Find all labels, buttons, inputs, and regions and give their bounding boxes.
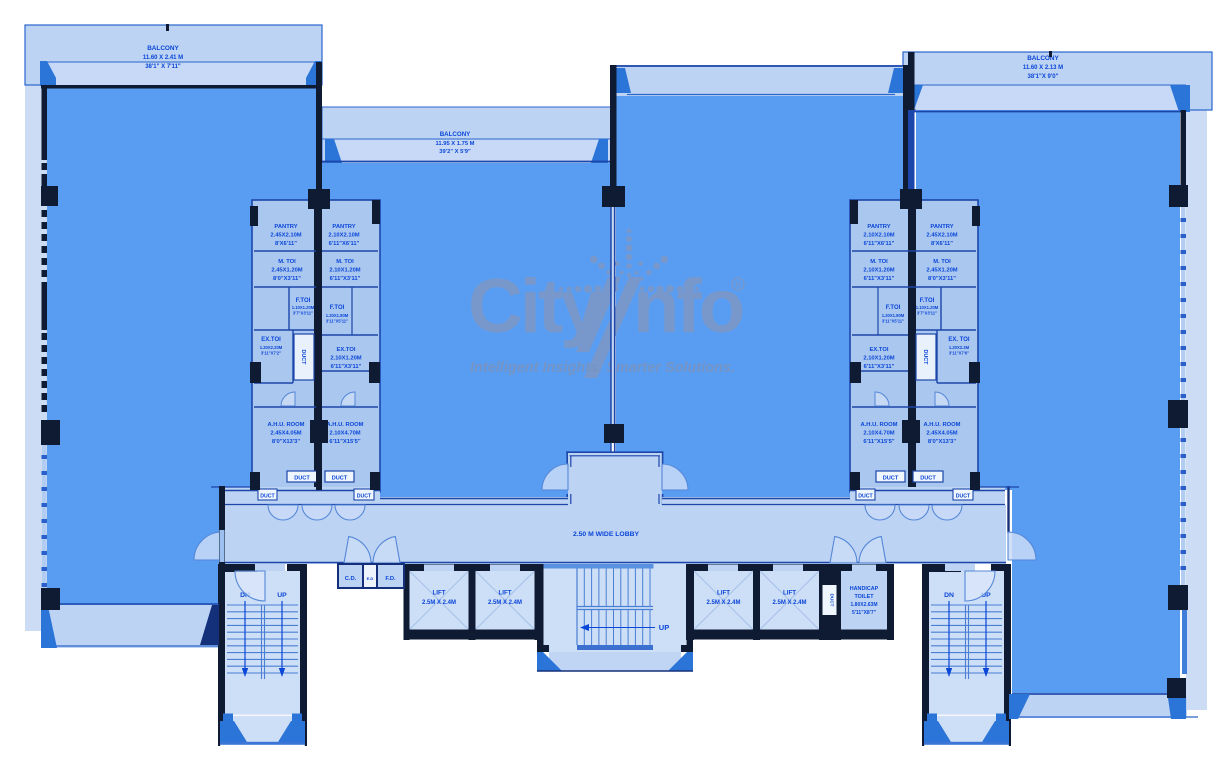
svg-text:DUCT: DUCT: [922, 350, 928, 366]
svg-text:2.10X1.20M: 2.10X1.20M: [329, 268, 360, 274]
svg-text:DUCT: DUCT: [294, 476, 310, 482]
svg-text:1.20X2.20M: 1.20X2.20M: [260, 345, 283, 350]
svg-text:6'11"X3'11": 6'11"X3'11": [864, 276, 895, 282]
svg-text:A.H.U. ROOM: A.H.U. ROOM: [326, 422, 363, 428]
svg-text:6'11"X3'11": 6'11"X3'11": [331, 364, 362, 370]
svg-text:1.20X1.80M: 1.20X1.80M: [882, 313, 905, 318]
svg-text:DUCT: DUCT: [300, 350, 306, 366]
svg-text:PANTRY: PANTRY: [930, 224, 953, 230]
svg-text:nfo: nfo: [633, 264, 743, 349]
svg-text:1.10X1.20M: 1.10X1.20M: [292, 305, 315, 310]
svg-text:3'7"X3'11": 3'7"X3'11": [293, 311, 313, 316]
svg-text:3'11"X5'11": 3'11"X5'11": [882, 319, 904, 324]
svg-text:BALCONY: BALCONY: [147, 45, 179, 52]
svg-text:5'11"X8'7": 5'11"X8'7": [852, 610, 877, 616]
svg-text:38'1"X 9'0": 38'1"X 9'0": [1028, 74, 1059, 80]
svg-text:Intelligent Insights. Smarter: Intelligent Insights. Smarter Solutions.: [470, 360, 735, 376]
svg-text:DUCT: DUCT: [956, 494, 971, 500]
svg-text:City: City: [468, 264, 602, 349]
svg-text:2.5M X 2.4M: 2.5M X 2.4M: [422, 600, 456, 606]
svg-text:E.D: E.D: [367, 576, 374, 581]
svg-text:F.TOI: F.TOI: [886, 305, 901, 311]
svg-text:DUCT: DUCT: [332, 476, 348, 482]
svg-text:PANTRY: PANTRY: [274, 224, 297, 230]
svg-text:2.10X4.70M: 2.10X4.70M: [329, 431, 360, 437]
svg-text:EX. TOI: EX. TOI: [948, 337, 970, 343]
svg-text:3'7"X3'11": 3'7"X3'11": [917, 311, 937, 316]
svg-text:3'11"X7'6": 3'11"X7'6": [949, 351, 969, 356]
svg-text:LIFT: LIFT: [783, 590, 796, 597]
svg-text:11.60 X 2.41 M: 11.60 X 2.41 M: [143, 55, 183, 61]
svg-text:UP: UP: [659, 623, 669, 632]
svg-text:HANDICAP: HANDICAP: [850, 586, 879, 592]
svg-text:1.80X2.63M: 1.80X2.63M: [851, 602, 878, 608]
svg-text:1.20X2.3M: 1.20X2.3M: [949, 345, 970, 350]
svg-text:6'11"X6'11": 6'11"X6'11": [329, 241, 360, 247]
svg-text:2.10X2.10M: 2.10X2.10M: [328, 233, 359, 239]
svg-text:EX.TOI: EX.TOI: [870, 347, 889, 353]
svg-text:6'11"X15'5": 6'11"X15'5": [329, 439, 360, 445]
svg-text:38'1" X 7'11": 38'1" X 7'11": [145, 64, 181, 70]
svg-text:2.5M X 2.4M: 2.5M X 2.4M: [772, 600, 806, 606]
svg-text:C.D.: C.D.: [345, 576, 357, 582]
svg-text:11.95 X 1.75 M: 11.95 X 1.75 M: [436, 141, 475, 147]
svg-text:DUCT: DUCT: [920, 476, 936, 482]
svg-text:2.45X4.05M: 2.45X4.05M: [270, 431, 301, 437]
svg-text:A.H.U. ROOM: A.H.U. ROOM: [267, 422, 304, 428]
svg-text:2.45X1.20M: 2.45X1.20M: [926, 268, 957, 274]
svg-text:DUCT: DUCT: [357, 494, 372, 500]
svg-text:2.10X1.20M: 2.10X1.20M: [863, 268, 894, 274]
svg-text:EX.TOI: EX.TOI: [337, 347, 356, 353]
svg-text:2.45X1.20M: 2.45X1.20M: [271, 268, 302, 274]
svg-text:8'X6'11": 8'X6'11": [931, 241, 953, 247]
svg-text:BALCONY: BALCONY: [440, 131, 471, 138]
svg-text:F.D.: F.D.: [385, 576, 396, 582]
svg-text:2.10X1.20M: 2.10X1.20M: [863, 356, 894, 362]
svg-text:2.10X2.10M: 2.10X2.10M: [863, 233, 894, 239]
svg-text:LIFT: LIFT: [717, 590, 730, 597]
svg-text:3'11"X7'2": 3'11"X7'2": [261, 351, 281, 356]
svg-text:2.45X2.10M: 2.45X2.10M: [926, 233, 957, 239]
svg-text:PANTRY: PANTRY: [867, 224, 890, 230]
svg-text:8'0"X13'3": 8'0"X13'3": [272, 439, 300, 445]
svg-text:6'11"X3'11": 6'11"X3'11": [330, 276, 361, 282]
svg-text:2.45X2.10M: 2.45X2.10M: [270, 233, 301, 239]
svg-text:11.60 X 2.13 M: 11.60 X 2.13 M: [1023, 65, 1063, 71]
svg-text:R: R: [735, 281, 741, 290]
svg-text:A.H.U. ROOM: A.H.U. ROOM: [860, 422, 897, 428]
svg-text:DUCT: DUCT: [883, 476, 899, 482]
svg-text:DUCT: DUCT: [260, 494, 275, 500]
svg-text:EX.TOI: EX.TOI: [261, 337, 281, 343]
svg-text:A.H.U. ROOM: A.H.U. ROOM: [923, 422, 960, 428]
svg-text:M. TOI: M. TOI: [870, 259, 888, 265]
svg-text:1.20X1.80M: 1.20X1.80M: [326, 313, 349, 318]
svg-text:2.45X4.05M: 2.45X4.05M: [926, 431, 957, 437]
svg-text:DUCT: DUCT: [858, 494, 873, 500]
svg-text:3'11"X5'11": 3'11"X5'11": [326, 319, 348, 324]
svg-text:2.10X4.70M: 2.10X4.70M: [863, 431, 894, 437]
svg-text:6'11"X3'11": 6'11"X3'11": [864, 364, 895, 370]
svg-text:LIFT: LIFT: [498, 590, 511, 597]
svg-text:8'0"X3'11": 8'0"X3'11": [928, 276, 956, 282]
svg-text:F.TOI: F.TOI: [330, 305, 345, 311]
svg-text:8'X6'11": 8'X6'11": [275, 241, 297, 247]
svg-text:UP: UP: [277, 592, 287, 599]
svg-text:39'2" X 5'9": 39'2" X 5'9": [439, 149, 471, 155]
svg-text:8'0"X13'3": 8'0"X13'3": [928, 439, 956, 445]
svg-text:LIFT: LIFT: [432, 590, 445, 597]
svg-text:BALCONY: BALCONY: [1027, 55, 1059, 62]
svg-text:1.10X1.20M: 1.10X1.20M: [916, 305, 939, 310]
svg-text:DUCT: DUCT: [830, 594, 835, 607]
svg-text:TOILET: TOILET: [854, 594, 874, 600]
svg-text:M. TOI: M. TOI: [278, 259, 296, 265]
svg-text:2.5M X 2.4M: 2.5M X 2.4M: [488, 600, 522, 606]
svg-text:M. TOI: M. TOI: [336, 259, 354, 265]
svg-text:DN: DN: [944, 592, 954, 599]
svg-text:2.5M X 2.4M: 2.5M X 2.4M: [706, 600, 740, 606]
svg-text:M. TOI: M. TOI: [933, 259, 951, 265]
svg-text:F.TOI: F.TOI: [920, 298, 935, 304]
svg-text:2.50 M WIDE LOBBY: 2.50 M WIDE LOBBY: [573, 531, 640, 538]
svg-text:2.10X1.20M: 2.10X1.20M: [330, 356, 361, 362]
svg-text:8'0"X3'11": 8'0"X3'11": [273, 276, 301, 282]
svg-text:6'11"X15'5": 6'11"X15'5": [863, 439, 894, 445]
svg-text:F.TOI: F.TOI: [296, 298, 311, 304]
svg-text:PANTRY: PANTRY: [332, 224, 355, 230]
svg-text:6'11"X6'11": 6'11"X6'11": [864, 241, 895, 247]
